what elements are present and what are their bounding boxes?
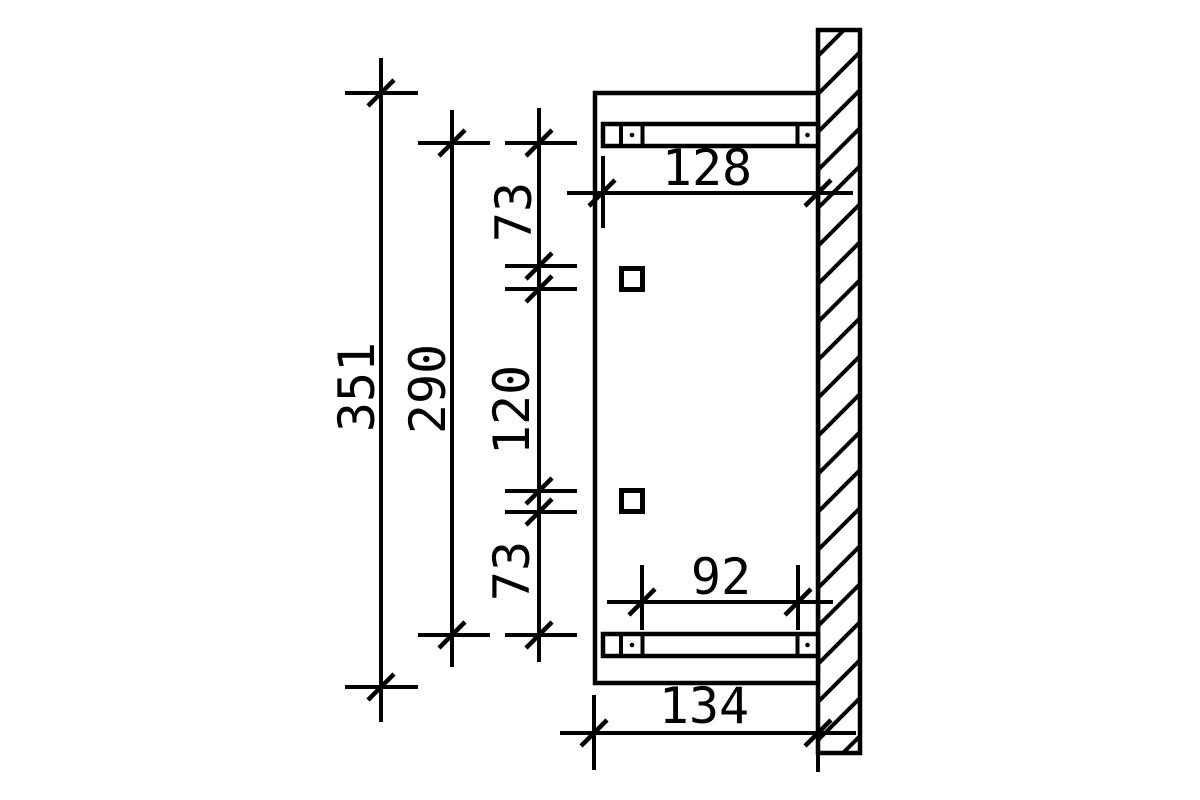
top-rail-left-bolt-dot <box>630 133 635 138</box>
wall-hatching <box>818 30 860 753</box>
wall-section <box>818 30 860 753</box>
dim-label-rail-bolt-spacing: 92 <box>691 548 751 606</box>
dimension-drawing: 351 290 73 120 73 128 92 134 <box>0 0 1200 800</box>
dim-chain-vertical: 73 120 73 <box>483 108 577 662</box>
bottom-rail-left-bolt-dot <box>630 643 635 648</box>
bottom-rail <box>603 634 818 656</box>
dim-label-frame-height: 290 <box>399 344 457 434</box>
dim-label-bottom-offset: 73 <box>483 541 541 601</box>
dim-frame-height: 290 <box>399 110 490 667</box>
top-rail-right-bolt-dot <box>805 133 810 138</box>
dim-label-overall-height: 351 <box>328 342 386 432</box>
dim-label-top-offset: 73 <box>485 182 543 242</box>
bracket-bolt-square-bottom <box>622 491 643 512</box>
bottom-rail-outline <box>603 634 818 656</box>
dim-label-top-rail-length: 128 <box>662 139 752 197</box>
bottom-rail-right-bolt-dot <box>805 643 810 648</box>
dim-label-bottom-depth: 134 <box>659 677 749 735</box>
dim-bottom-depth: 134 <box>560 677 856 772</box>
technical-drawing-canvas: 351 290 73 120 73 128 92 134 <box>0 0 1200 800</box>
bracket-bolt-square-top <box>622 269 643 290</box>
dim-label-bracket-spacing: 120 <box>483 365 541 455</box>
